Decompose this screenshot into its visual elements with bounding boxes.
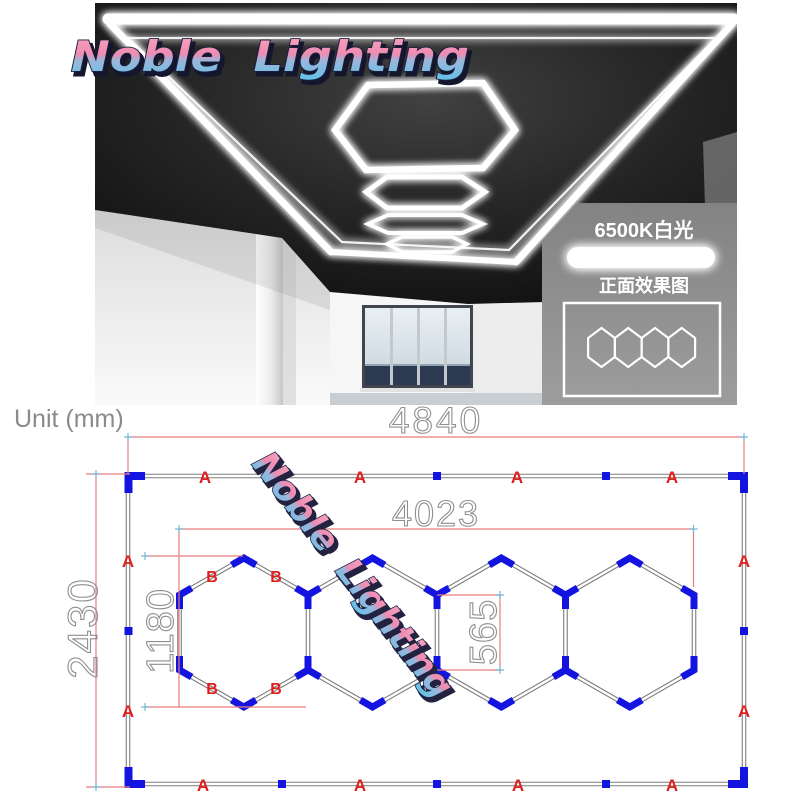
label-b-upper-right: B [270,569,282,586]
joint-square [125,627,133,635]
color-temp-label: 6500K白光 [595,218,694,242]
brand-logo: Noble Lighting Noble Lighting [71,32,472,85]
label-a-top-1: A [199,468,211,487]
window-sill [360,388,475,392]
window-mullion-1 [390,308,393,385]
label-a-bottom-3: A [512,776,524,795]
label-b-lower-right: B [270,681,282,698]
info-panel: 6500K白光 正面效果图 [542,203,737,405]
joint-square [602,780,610,788]
label-a-top-3: A [511,468,523,487]
label-a-bottom-4: A [666,776,678,795]
label-a-right-2: A [738,702,750,721]
product-image: Noble Lighting Noble Lighting 6500K白光 正面… [0,0,800,800]
label-a-left-1: A [122,552,134,571]
led-bar-sample [567,247,715,268]
label-a-bottom-1: A [197,776,209,795]
label-b-upper-left: B [206,569,218,586]
label-b-lower-left: B [206,681,218,698]
dim-hex-height: 1180 [140,588,182,674]
corridor-side-wall [470,295,545,405]
dim-overall-height: 2430 [59,577,106,678]
dimension-ticks [92,433,748,791]
unit-label: Unit (mm) [14,405,124,433]
joint-square [433,472,441,480]
dim-hex-side: 565 [463,599,505,665]
joint-square [740,627,748,635]
label-a-top-2: A [354,468,366,487]
front-view-label: 正面效果图 [599,275,689,296]
brand-logo-text: Noble Lighting [71,32,469,81]
window [360,305,475,392]
dim-overall-width: 4840 [389,400,483,441]
dimension-diagram: Unit (mm) 4840 4023 2430 1180 565 A A A … [0,400,800,800]
window-mullion-3 [444,308,447,385]
dimension-lines [86,437,744,787]
room-render-photo: Noble Lighting Noble Lighting 6500K白光 正面… [0,0,800,405]
joint-square [278,780,286,788]
label-a-top-4: A [666,468,678,487]
label-a-bottom-2: A [354,776,366,795]
label-a-left-2: A [122,702,134,721]
joint-square [433,780,441,788]
dim-inner-width: 4023 [392,493,480,534]
joint-square [602,472,610,480]
window-mullion-2 [417,308,420,385]
label-a-right-1: A [738,552,750,571]
